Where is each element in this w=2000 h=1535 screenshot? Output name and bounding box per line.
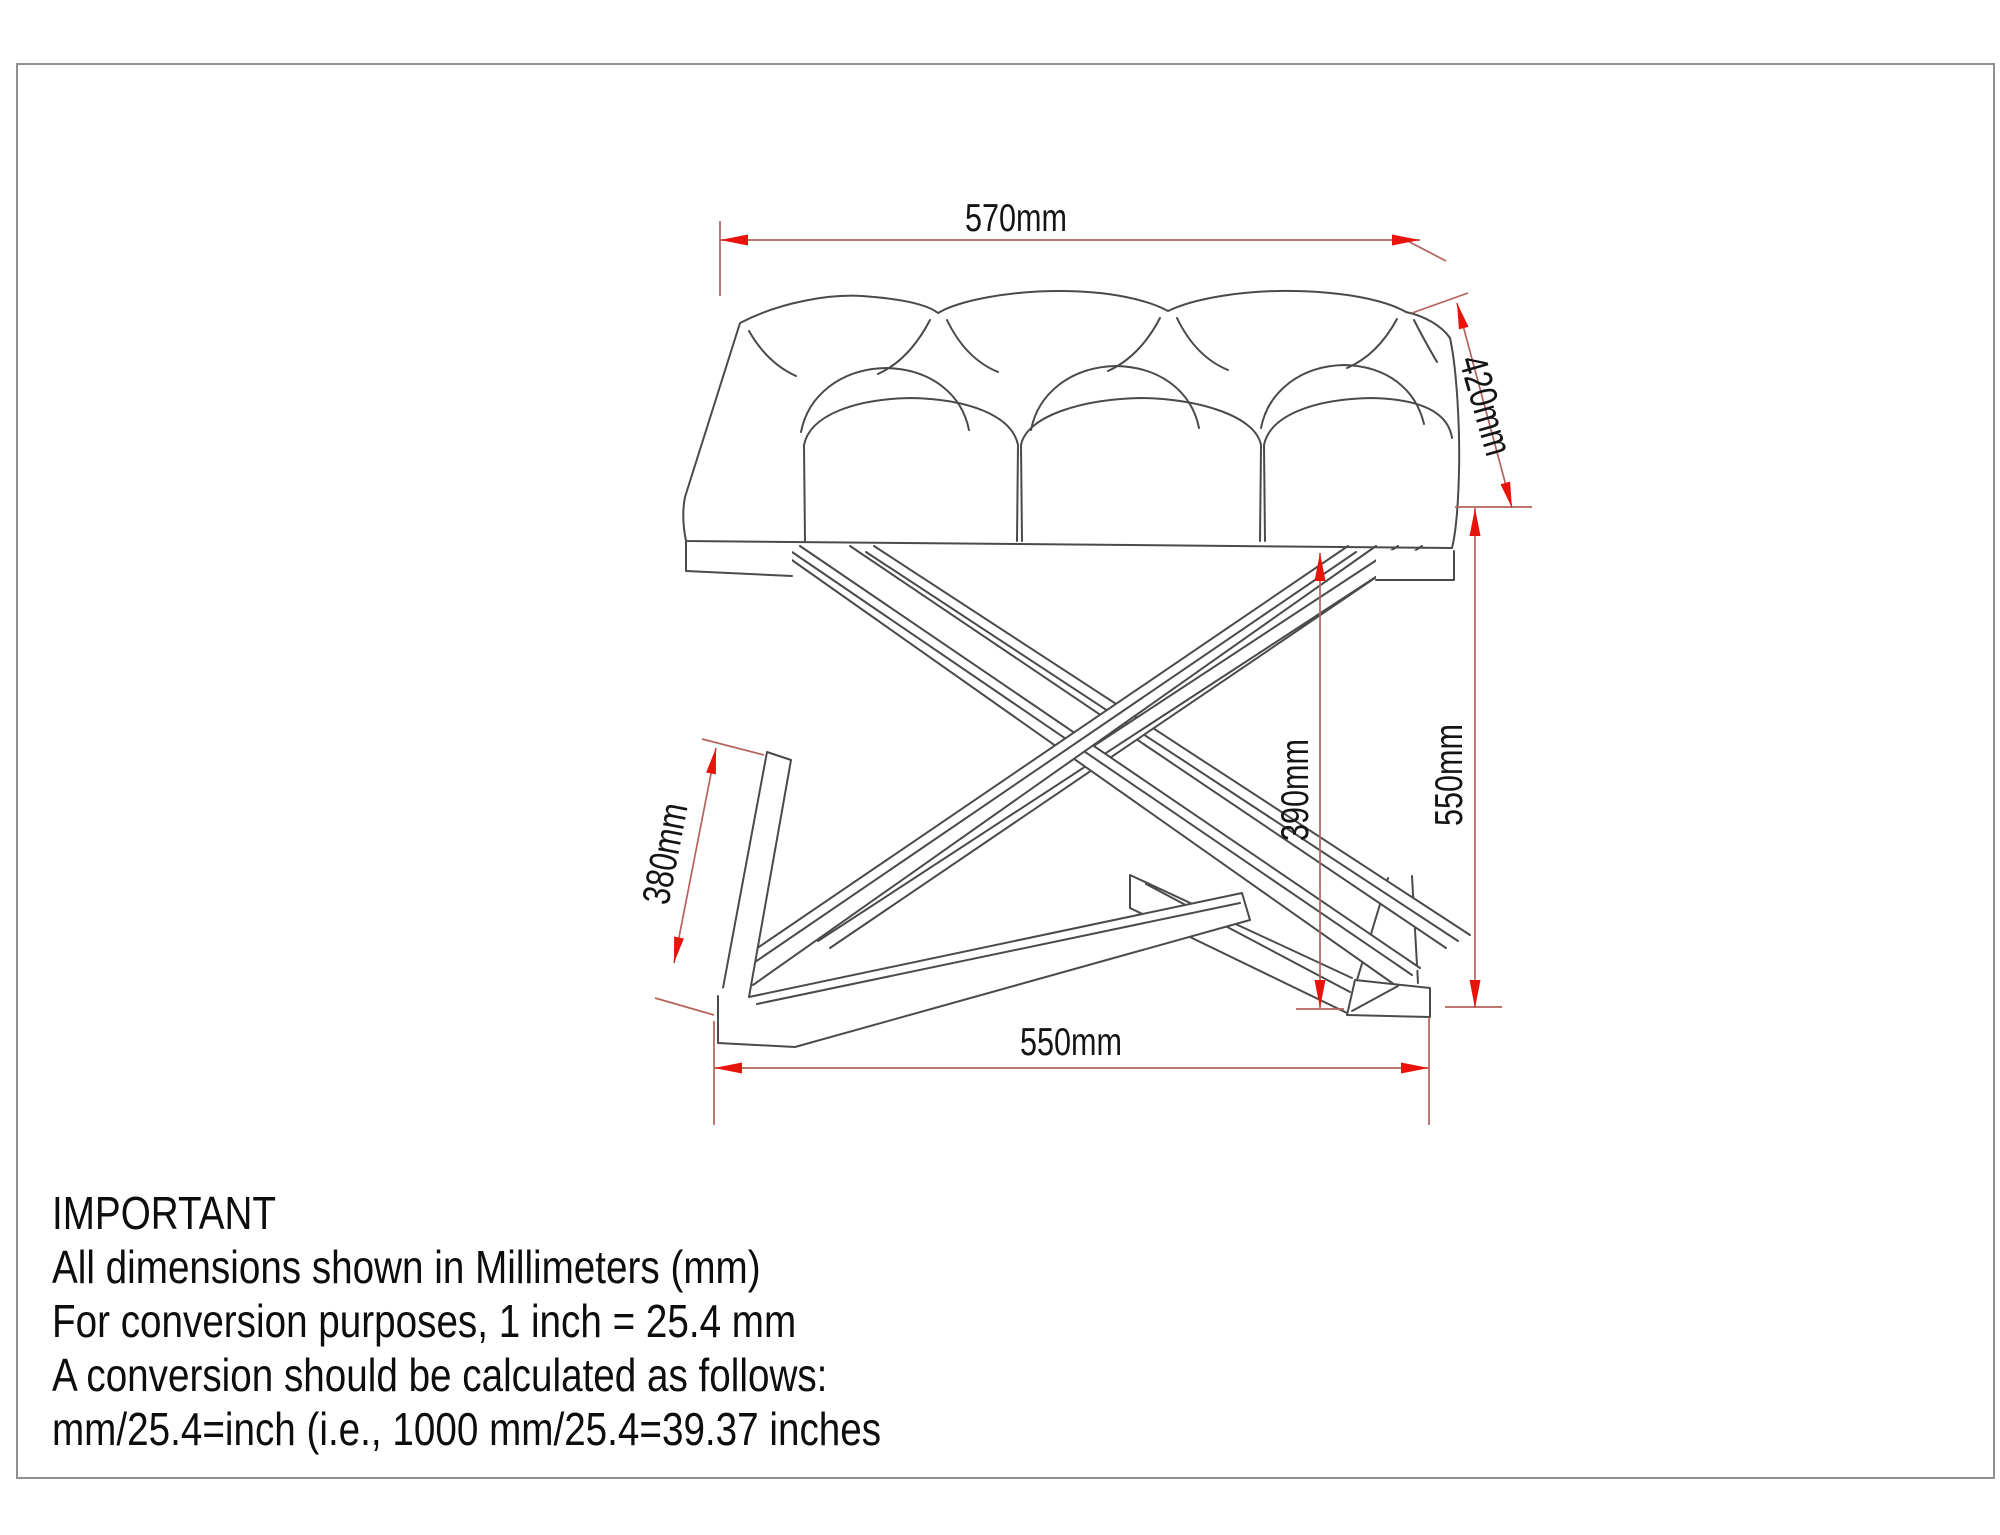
note-heading: IMPORTANT	[52, 1186, 881, 1240]
page: 570mm 420mm 550mm 390mm 380m	[0, 0, 2000, 1535]
cushion-tufting-pattern	[749, 318, 1452, 541]
dimension-label-top-width: 570mm	[965, 197, 1067, 240]
note-line: mm/25.4=inch (i.e., 1000 mm/25.4=39.37 i…	[52, 1402, 881, 1456]
bench-right-foot-front	[1347, 980, 1430, 1017]
note-line: For conversion purposes, 1 inch = 25.4 m…	[52, 1294, 881, 1348]
important-note: IMPORTANT All dimensions shown in Millim…	[52, 1186, 881, 1456]
dimension-depth: 420mm	[1412, 293, 1532, 508]
dimension-label-overall-height: 550mm	[1428, 724, 1471, 826]
dimension-top-width: 570mm	[720, 197, 1446, 296]
note-line: A conversion should be calculated as fol…	[52, 1348, 881, 1402]
dimension-label-inner-height: 390mm	[1274, 739, 1317, 841]
bench-cushion	[683, 291, 1459, 548]
dimension-label-base-width: 550mm	[1020, 1021, 1122, 1064]
dimension-label-depth: 420mm	[1450, 351, 1519, 461]
note-line: All dimensions shown in Millimeters (mm)	[52, 1240, 881, 1294]
